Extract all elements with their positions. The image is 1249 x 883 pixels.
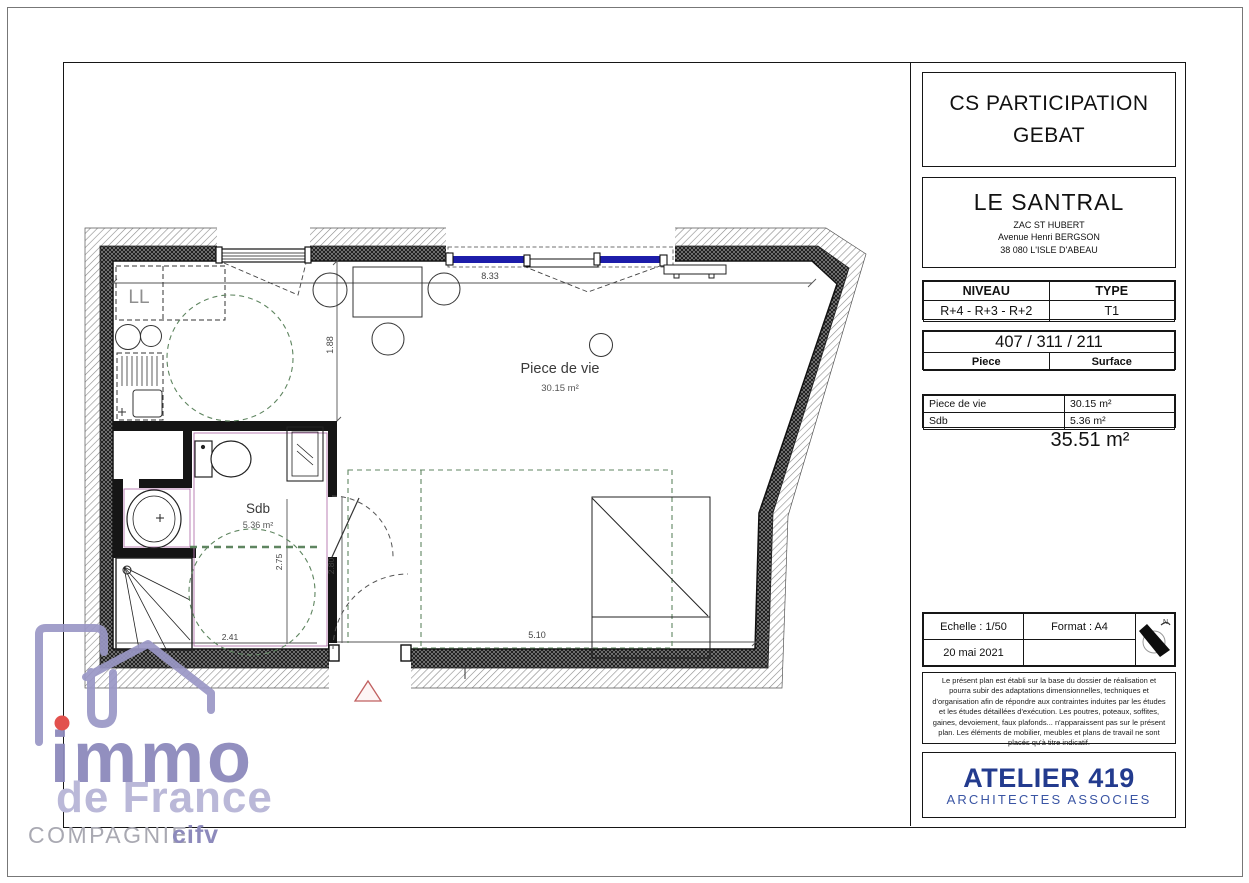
project-name: LE SANTRAL (974, 189, 1125, 216)
logo-de-france-text: de France (56, 773, 273, 822)
type-value: T1 (1049, 301, 1175, 322)
disclaimer-box: Le présent plan est établi sur la base d… (922, 672, 1176, 744)
logo-compagnie-text: COMPAGNIE (28, 822, 189, 848)
col-header-surface: Surface (1049, 353, 1175, 371)
format-value: Format : A4 (1024, 614, 1136, 640)
north-letter: N (1163, 619, 1168, 626)
level-type-table: NIVEAU TYPE R+4 - R+3 - R+2 T1 (922, 280, 1176, 320)
logo-cifv-text: cifv (172, 821, 219, 849)
lot-box: 407 / 311 / 211 Piece Surface (922, 330, 1176, 370)
project-address-2: Avenue Henri BERGSON (998, 231, 1100, 243)
scale-value: Echelle : 1/50 (924, 614, 1024, 640)
project-box: LE SANTRAL ZAC ST HUBERT Avenue Henri BE… (922, 177, 1176, 268)
project-address-1: ZAC ST HUBERT (998, 219, 1100, 231)
surface-row-value: 5.36 m² (1065, 413, 1175, 430)
architect-subtitle: ARCHITECTES ASSOCIES (946, 792, 1151, 807)
surface-row-name: Piece de vie (924, 396, 1065, 413)
date-value: 20 mai 2021 (924, 640, 1024, 666)
meta-box: Echelle : 1/50 Format : A4 N 20 mai 2021 (922, 612, 1176, 667)
col-header-niveau: NIVEAU (924, 282, 1050, 301)
client-box: CS PARTICIPATION GEBAT (922, 72, 1176, 167)
lot-numbers: 407 / 311 / 211 (924, 332, 1175, 353)
project-address-3: 38 080 L'ISLE D'ABEAU (998, 244, 1100, 256)
logo-red-dot-icon (55, 716, 70, 731)
architect-box: ATELIER 419 ARCHITECTES ASSOCIES (922, 752, 1176, 818)
drawing-sheet: LL Piece de vie 30.15 m² Sdb 5.36 m² 8.3… (0, 0, 1249, 883)
col-header-piece: Piece (924, 353, 1050, 371)
surface-row-value: 30.15 m² (1065, 396, 1175, 413)
niveau-value: R+4 - R+3 - R+2 (924, 301, 1050, 322)
surface-table: Piece de vie 30.15 m² Sdb 5.36 m² (922, 394, 1176, 428)
empty-cell (1024, 640, 1136, 666)
surface-row-name: Sdb (924, 413, 1065, 430)
north-arrow-icon: N (1136, 615, 1172, 665)
architect-name: ATELIER 419 (963, 763, 1135, 794)
title-column-divider (910, 62, 911, 826)
client-name-line2: GEBAT (1013, 120, 1085, 152)
col-header-type: TYPE (1049, 282, 1175, 301)
total-surface: 35.51 m² (980, 429, 1200, 452)
immo-de-france-logo: immo de France COMPAGNIE cifv (0, 600, 290, 883)
client-name-line1: CS PARTICIPATION (950, 88, 1149, 120)
north-arrow-cell: N (1136, 614, 1175, 666)
